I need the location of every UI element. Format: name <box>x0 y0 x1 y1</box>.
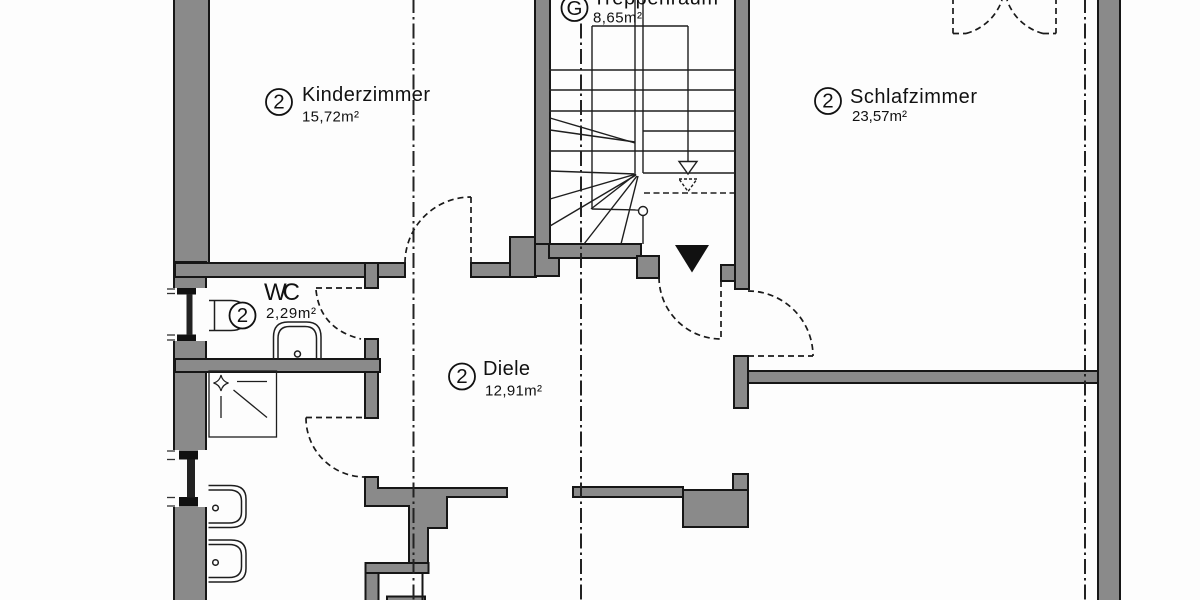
svg-text:15,72m²: 15,72m² <box>302 109 359 126</box>
svg-text:8,65m²: 8,65m² <box>593 10 642 27</box>
svg-text:Treppenraum: Treppenraum <box>593 0 718 10</box>
svg-text:12,91m²: 12,91m² <box>485 383 542 400</box>
svg-text:Diele: Diele <box>483 358 530 380</box>
svg-text:2: 2 <box>273 91 284 114</box>
svg-text:2: 2 <box>822 90 833 113</box>
svg-text:Kinderzimmer: Kinderzimmer <box>302 84 430 106</box>
svg-text:2: 2 <box>456 365 467 388</box>
svg-text:23,57m²: 23,57m² <box>852 108 907 125</box>
svg-text:Schlafzimmer: Schlafzimmer <box>850 86 977 108</box>
svg-text:2,29m²: 2,29m² <box>266 305 316 322</box>
svg-text:G: G <box>567 0 583 20</box>
svg-text:2: 2 <box>237 304 248 327</box>
svg-text:WC: WC <box>264 279 300 306</box>
